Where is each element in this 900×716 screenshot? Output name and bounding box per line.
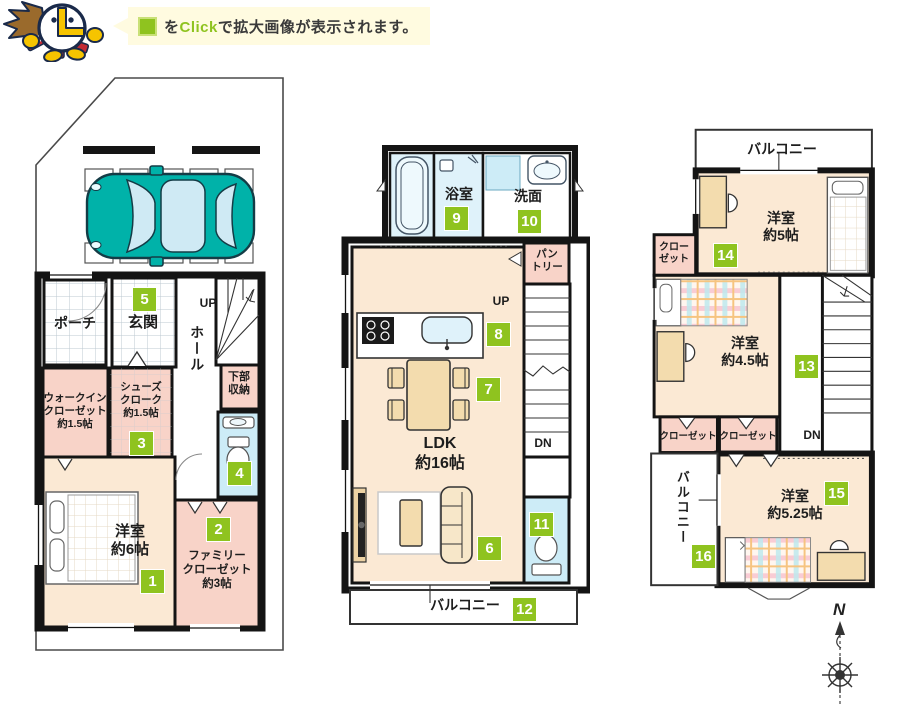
label-up-1f: UP — [193, 296, 223, 311]
label-washroom: 洗面 — [502, 188, 554, 205]
badge-9[interactable]: 9 — [444, 206, 469, 231]
label-balcony-2f: バルコニー — [417, 597, 513, 614]
label-closet-left: クローゼット — [659, 431, 717, 443]
label-up-2f: UP — [485, 294, 517, 309]
badge-8[interactable]: 8 — [486, 322, 511, 347]
legend-text: をClickで拡大画像が表示されます。 — [164, 16, 418, 37]
label-ldk: LDK 約16帖 — [400, 434, 480, 473]
badge-16[interactable]: 16 — [691, 544, 716, 569]
badge-13[interactable]: 13 — [794, 354, 819, 379]
mascot-clock-character-icon — [2, 0, 114, 62]
badge-14[interactable]: 14 — [713, 243, 738, 268]
floorplan-page: をClickで拡大画像が表示されます。 — [0, 0, 900, 716]
label-porch: ポーチ — [45, 315, 105, 332]
compass-icon: N — [795, 595, 885, 713]
badge-3[interactable]: 3 — [129, 431, 154, 456]
label-bedroom-5: 洋室 約5帖 — [745, 210, 817, 244]
badge-11[interactable]: 11 — [529, 512, 554, 537]
badge-1[interactable]: 1 — [140, 569, 165, 594]
badge-2[interactable]: 2 — [206, 517, 231, 542]
label-dn-3f: DN — [796, 428, 828, 443]
badge-15[interactable]: 15 — [824, 481, 849, 506]
floor2-plan: 浴室 洗面 パン トリー UP LDK 約16帖 DN バルコニー 9 10 8… — [340, 140, 590, 635]
label-dn-2f: DN — [528, 436, 558, 451]
label-hall: ホール — [188, 325, 205, 373]
floor3-plan: バルコニー 洋室 約5帖 クロー ゼット 洋室 約4.5帖 クローゼット クロー… — [648, 108, 878, 603]
label-pantry: パン トリー — [526, 248, 568, 274]
legend-square-icon — [138, 17, 157, 36]
label-closet-right: クローゼット — [719, 431, 777, 443]
label-walk-in-closet: ウォークイン クローゼット 約1.5帖 — [40, 392, 110, 430]
floor1-plan: ポーチ 玄関 ホール UP 下部 収納 ウォークイン クローゼット 約1.5帖 … — [30, 75, 290, 660]
label-closet-upper: クロー ゼット — [655, 242, 693, 266]
badge-6[interactable]: 6 — [477, 536, 502, 561]
badge-7[interactable]: 7 — [476, 377, 501, 402]
label-balcony-3f-left: バルコニー — [674, 470, 690, 545]
label-balcony-3f-top: バルコニー — [734, 141, 830, 158]
label-under-stair-storage: 下部 収納 — [221, 371, 257, 398]
label-bedroom-45: 洋室 約4.5帖 — [708, 335, 782, 369]
badge-10[interactable]: 10 — [517, 209, 542, 234]
compass-north-label: N — [833, 600, 846, 619]
label-family-closet: ファミリー クローゼット 約3帖 — [177, 549, 257, 591]
legend-tooltip: をClickで拡大画像が表示されます。 — [128, 7, 430, 45]
label-bedroom-6: 洋室 約6帖 — [90, 523, 170, 560]
badge-5[interactable]: 5 — [132, 287, 157, 312]
badge-4[interactable]: 4 — [227, 461, 252, 486]
badge-12[interactable]: 12 — [512, 597, 537, 622]
label-entrance: 玄関 — [111, 314, 175, 332]
label-shoes-cloak: シューズ クローク 約1.5帖 — [108, 381, 174, 419]
label-bath: 浴室 — [435, 186, 483, 203]
car-top-view — [87, 166, 254, 266]
